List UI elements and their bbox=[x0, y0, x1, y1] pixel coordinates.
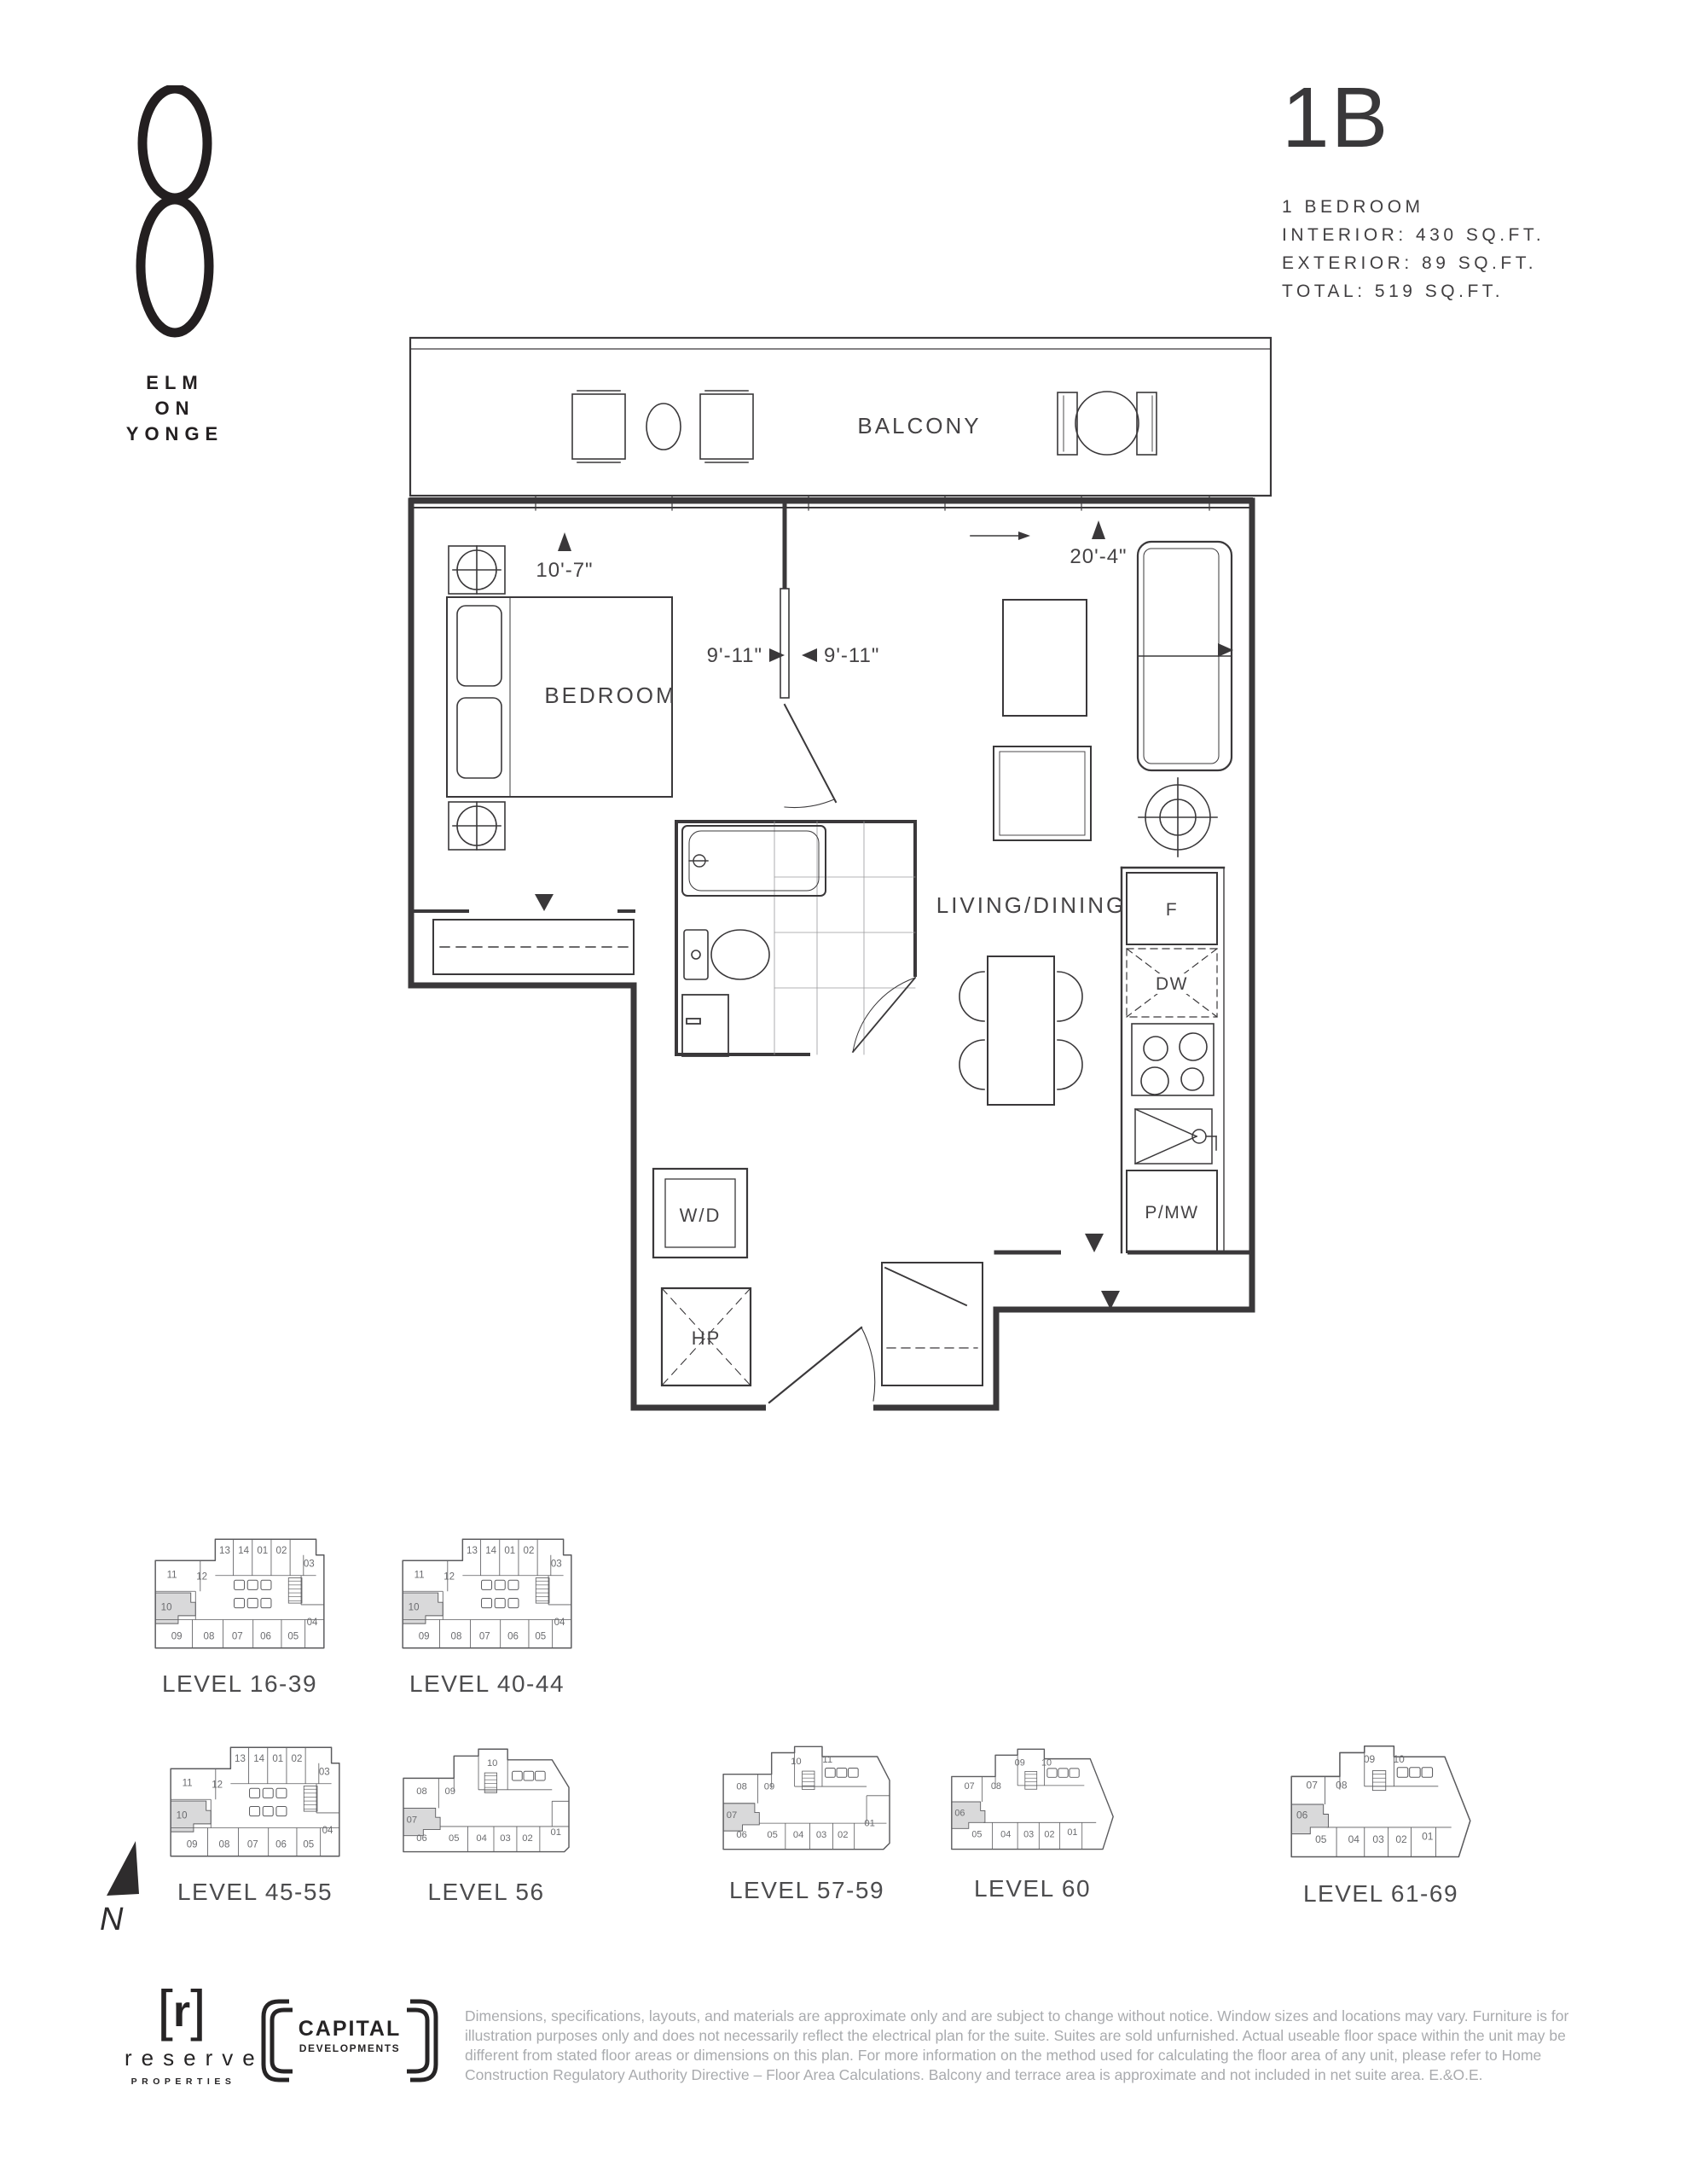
keyplan-label: LEVEL 45-55 bbox=[162, 1879, 348, 1906]
keyplan-unit-number: 05 bbox=[287, 1632, 299, 1642]
dining-table bbox=[959, 956, 1082, 1105]
reserve-r: r bbox=[173, 1987, 190, 2036]
dim-arrow-up-living bbox=[1092, 520, 1105, 539]
exterior-walls bbox=[411, 501, 1252, 1408]
kitchen-sink bbox=[1135, 1109, 1216, 1164]
floor-lamp bbox=[1139, 778, 1217, 857]
keyplan-unit-number: 07 bbox=[479, 1632, 490, 1642]
capital-sub: DEVELOPMENTS bbox=[260, 2042, 439, 2054]
floor-plan-drawing: BALCONY BEDROOM LIVING/DINING W/D HP F D… bbox=[408, 331, 1278, 1423]
reserve-name: reserve bbox=[125, 2045, 246, 2071]
keyplan-unit-number: 03 bbox=[1372, 1833, 1384, 1845]
keyplan-unit-number: 13 bbox=[235, 1754, 246, 1764]
keyplan-unit-number: 06 bbox=[954, 1809, 965, 1819]
keyplan-unit-number: 06 bbox=[736, 1830, 746, 1840]
keyplan-unit-number: 10 bbox=[177, 1810, 188, 1821]
keyplan-unit-number: 09 bbox=[171, 1632, 183, 1642]
coffee-table bbox=[1003, 600, 1087, 716]
keyplan-label: LEVEL 56 bbox=[396, 1879, 577, 1906]
keyplan-unit-number: 13 bbox=[467, 1546, 478, 1556]
balcony-label: BALCONY bbox=[857, 413, 981, 439]
balcony-door-arrow bbox=[971, 531, 1030, 540]
unit-code: 1B bbox=[1282, 75, 1674, 160]
keyplan-unit-number: 12 bbox=[196, 1571, 207, 1582]
brand-line-3: YONGE bbox=[81, 421, 269, 447]
keyplan-level-40-44: 1112131401020304050607080910 LEVEL 40-44 bbox=[394, 1529, 580, 1698]
bathroom-vanity bbox=[682, 995, 728, 1056]
hp-label: HP bbox=[692, 1327, 722, 1349]
keyplan-unit-number: 05 bbox=[449, 1833, 459, 1844]
keyplan-unit-number: 02 bbox=[276, 1546, 287, 1556]
dim-living-width: 20'-4" bbox=[1070, 545, 1127, 568]
brand-line-2: ON bbox=[81, 396, 269, 421]
keyplan-level-45-55: 1112131401020304050607080910 LEVEL 45-55 bbox=[162, 1737, 348, 1906]
sofa bbox=[1138, 542, 1232, 770]
keyplan-unit-number: 08 bbox=[451, 1632, 462, 1642]
keyplan-unit-number: 09 bbox=[1364, 1753, 1376, 1765]
keyplan-label: LEVEL 40-44 bbox=[394, 1670, 580, 1698]
keyplan-drawing: 07080910060504030201 bbox=[1284, 1740, 1478, 1868]
keyplan-unit-number: 08 bbox=[991, 1781, 1001, 1792]
keyplan-unit-number: 12 bbox=[443, 1571, 455, 1582]
bathroom bbox=[676, 822, 915, 1056]
unit-header: 1B 1 BEDROOM INTERIOR: 430 SQ.FT. EXTERI… bbox=[1282, 75, 1674, 305]
balcony-chair-left-2 bbox=[700, 391, 753, 462]
keyplan-unit-number: 10 bbox=[1041, 1757, 1052, 1768]
floorplan-sheet: { "brand": { "name_lines": "ELM\nON\nYON… bbox=[0, 0, 1687, 2184]
keyplan-unit-number: 04 bbox=[307, 1618, 318, 1628]
keyplan-unit-number: 07 bbox=[1307, 1780, 1319, 1792]
keyplan-unit-number: 11 bbox=[415, 1571, 425, 1581]
bathtub bbox=[682, 826, 826, 896]
balcony-side-table bbox=[646, 404, 681, 450]
keyplan-unit-number: 03 bbox=[319, 1768, 330, 1778]
brand-name: ELM ON YONGE bbox=[81, 370, 269, 447]
keyplan-unit-number: 07 bbox=[247, 1840, 258, 1850]
figure-8-logo-icon bbox=[122, 85, 228, 341]
keyplan-unit-number: 01 bbox=[272, 1754, 283, 1764]
keyplan-unit-number: 07 bbox=[232, 1632, 243, 1642]
keyplan-unit-number: 06 bbox=[260, 1632, 271, 1642]
balcony-chair-right-2 bbox=[1137, 392, 1157, 455]
dim-span-right: 9'-11" bbox=[824, 644, 879, 667]
keyplan-unit-number: 11 bbox=[183, 1779, 193, 1789]
toilet bbox=[684, 930, 769, 979]
balcony-outline bbox=[410, 338, 1271, 496]
north-arrow: N bbox=[81, 1834, 175, 1937]
keyplan-unit-number: 04 bbox=[322, 1826, 333, 1836]
keyplan-unit-number: 04 bbox=[1348, 1833, 1360, 1845]
fridge-label: F bbox=[1166, 900, 1178, 920]
keyplan-label: LEVEL 61-69 bbox=[1284, 1880, 1478, 1908]
keyplan-unit-number: 04 bbox=[1000, 1830, 1011, 1840]
keyplan-unit-number: 02 bbox=[292, 1754, 303, 1764]
keyplan-label: LEVEL 60 bbox=[945, 1875, 1120, 1902]
floor-plan: BALCONY BEDROOM LIVING/DINING W/D HP F D… bbox=[408, 331, 1278, 1427]
keyplan-unit-number: 10 bbox=[1393, 1753, 1405, 1765]
keyplan-unit-number: 06 bbox=[275, 1840, 287, 1850]
balcony-chair-right-1 bbox=[1058, 392, 1077, 455]
reserve-properties-logo: [r] reserve PROPERTIES bbox=[118, 1981, 246, 2087]
reserve-bracket-right: ] bbox=[190, 1978, 206, 2042]
keyplan-unit-number: 02 bbox=[1395, 1833, 1407, 1845]
keyplan-drawing: 1112131401020304050607080910 bbox=[162, 1737, 348, 1867]
reserve-bracket-left: [ bbox=[158, 1978, 173, 2042]
entry-closet bbox=[882, 1263, 983, 1385]
entry-door bbox=[769, 1327, 875, 1403]
bedroom-label: BEDROOM bbox=[544, 682, 676, 708]
keyplan-unit-number: 13 bbox=[219, 1546, 230, 1556]
keyplan-level-16-39: 1112131401020304050607080910 LEVEL 16-39 bbox=[147, 1529, 333, 1698]
keyplan-unit-number: 06 bbox=[416, 1833, 426, 1844]
keyplan-unit-number: 09 bbox=[419, 1632, 430, 1642]
balcony-round-table bbox=[1075, 392, 1139, 455]
keyplan-unit-number: 08 bbox=[219, 1840, 230, 1850]
dim-arrow-up-bedroom bbox=[558, 532, 571, 551]
keyplan-unit-number: 07 bbox=[965, 1781, 975, 1792]
keyplan-level-60: 07080910060504030201 LEVEL 60 bbox=[945, 1740, 1120, 1902]
keyplan-label: LEVEL 16-39 bbox=[147, 1670, 333, 1698]
keyplan-unit-number: 03 bbox=[1023, 1830, 1034, 1840]
nightstand-bottom bbox=[449, 802, 505, 850]
keyplan-unit-number: 03 bbox=[304, 1560, 315, 1570]
bedroom-closet bbox=[411, 894, 634, 974]
keyplan-level-61-69: 07080910060504030201 LEVEL 61-69 bbox=[1284, 1740, 1478, 1908]
reserve-mark-icon: [r] bbox=[118, 1981, 246, 2040]
keyplan-unit-number: 09 bbox=[1015, 1757, 1025, 1768]
capital-name: CAPITAL bbox=[260, 2017, 439, 2042]
unit-total-area: TOTAL: 519 SQ.FT. bbox=[1282, 277, 1674, 305]
keyplan-unit-number: 01 bbox=[504, 1546, 515, 1556]
keyplan-drawing: 1112131401020304050607080910 bbox=[147, 1529, 333, 1658]
keyplan-unit-number: 02 bbox=[838, 1830, 848, 1840]
north-arrow-icon: N bbox=[81, 1834, 175, 1937]
pmw-label: P/MW bbox=[1145, 1203, 1198, 1223]
capital-developments-logo: CAPITAL DEVELOPMENTS bbox=[260, 1998, 439, 2083]
nightstand-top bbox=[449, 546, 505, 594]
keyplan-unit-number: 09 bbox=[764, 1782, 774, 1792]
wd-label: W/D bbox=[680, 1205, 722, 1226]
keyplan-unit-number: 01 bbox=[551, 1827, 561, 1838]
keyplan-unit-number: 10 bbox=[409, 1602, 420, 1612]
keyplan-unit-number: 10 bbox=[161, 1602, 172, 1612]
keyplan-drawing: 07080910060504030201 bbox=[945, 1740, 1120, 1863]
unit-exterior-area: EXTERIOR: 89 SQ.FT. bbox=[1282, 249, 1674, 277]
keyplan-unit-number: 07 bbox=[407, 1815, 417, 1825]
keyplan-unit-number: 11 bbox=[167, 1571, 177, 1581]
reserve-sub: PROPERTIES bbox=[121, 2077, 246, 2087]
keyplan-unit-number: 05 bbox=[303, 1840, 314, 1850]
dim-bedroom-width: 10'-7" bbox=[536, 559, 593, 582]
bathroom-door bbox=[853, 978, 915, 1052]
keyplan-unit-number: 03 bbox=[816, 1830, 826, 1840]
disclaimer-text: Dimensions, specifications, layouts, and… bbox=[465, 2007, 1616, 2085]
brand-logo: ELM ON YONGE bbox=[81, 85, 269, 447]
keyplan-unit-number: 06 bbox=[1296, 1809, 1308, 1821]
keyplan-unit-number: 01 bbox=[257, 1546, 268, 1556]
keyplan-unit-number: 14 bbox=[253, 1754, 264, 1764]
keyplan-unit-number: 10 bbox=[791, 1757, 801, 1767]
keyplan-unit-number: 05 bbox=[535, 1632, 546, 1642]
keyplan-unit-number: 02 bbox=[1044, 1830, 1054, 1840]
keyplan-unit-number: 10 bbox=[487, 1758, 497, 1769]
balcony-chair-left-1 bbox=[572, 391, 625, 462]
keyplan-unit-number: 05 bbox=[767, 1830, 777, 1840]
keyplan-unit-number: 03 bbox=[551, 1560, 562, 1570]
keyplan-unit-number: 02 bbox=[522, 1833, 532, 1844]
keyplan-unit-number: 02 bbox=[524, 1546, 535, 1556]
keyplan-unit-number: 06 bbox=[507, 1632, 519, 1642]
keyplan-unit-number: 01 bbox=[1067, 1827, 1077, 1838]
keyplan-unit-number: 04 bbox=[476, 1833, 486, 1844]
keyplan-unit-number: 05 bbox=[1315, 1833, 1327, 1845]
keyplan-unit-number: 08 bbox=[416, 1786, 426, 1797]
keyplan-unit-number: 05 bbox=[971, 1830, 982, 1840]
keyplan-unit-number: 09 bbox=[187, 1840, 198, 1850]
keyplan-unit-number: 14 bbox=[238, 1546, 249, 1556]
keyplan-drawing: 0809101107060504030201 bbox=[716, 1739, 897, 1865]
keyplan-level-56: 08091007060504030201 LEVEL 56 bbox=[396, 1740, 577, 1906]
keyplan-unit-number: 03 bbox=[500, 1833, 510, 1844]
keyplan-unit-number: 07 bbox=[727, 1810, 737, 1821]
keyplan-unit-number: 12 bbox=[212, 1780, 223, 1790]
keyplan-label: LEVEL 57-59 bbox=[716, 1877, 897, 1904]
kitchen bbox=[1122, 868, 1224, 1252]
keyplan-unit-number: 09 bbox=[445, 1786, 455, 1797]
keyplan-unit-number: 01 bbox=[1422, 1830, 1434, 1842]
keyplan-unit-number: 14 bbox=[485, 1546, 496, 1556]
tv-unit bbox=[994, 746, 1091, 840]
keyplan-unit-number: 11 bbox=[822, 1755, 832, 1765]
keyplan-unit-number: 08 bbox=[1336, 1780, 1348, 1792]
living-label: LIVING/DINING bbox=[936, 892, 1126, 918]
dw-label: DW bbox=[1156, 974, 1188, 994]
keyplan-unit-number: 01 bbox=[864, 1819, 874, 1829]
brand-line-1: ELM bbox=[81, 370, 269, 396]
north-letter: N bbox=[100, 1902, 124, 1937]
keyplan-unit-number: 04 bbox=[793, 1830, 803, 1840]
keyplan-unit-number: 08 bbox=[204, 1632, 215, 1642]
dim-span-left: 9'-11" bbox=[707, 644, 762, 667]
dim-arrow-left-right-span bbox=[802, 648, 817, 662]
cooktop bbox=[1132, 1024, 1214, 1095]
unit-interior-area: INTERIOR: 430 SQ.FT. bbox=[1282, 221, 1674, 249]
keyplan-unit-number: 08 bbox=[736, 1782, 746, 1792]
keyplan-level-57-59: 0809101107060504030201 LEVEL 57-59 bbox=[716, 1739, 897, 1904]
unit-specs: 1 BEDROOM INTERIOR: 430 SQ.FT. EXTERIOR:… bbox=[1282, 193, 1674, 305]
keyplan-unit-number: 04 bbox=[554, 1618, 565, 1628]
unit-type: 1 BEDROOM bbox=[1282, 193, 1674, 221]
keyplan-drawing: 08091007060504030201 bbox=[396, 1740, 577, 1867]
keyplan-drawing: 1112131401020304050607080910 bbox=[394, 1529, 580, 1658]
